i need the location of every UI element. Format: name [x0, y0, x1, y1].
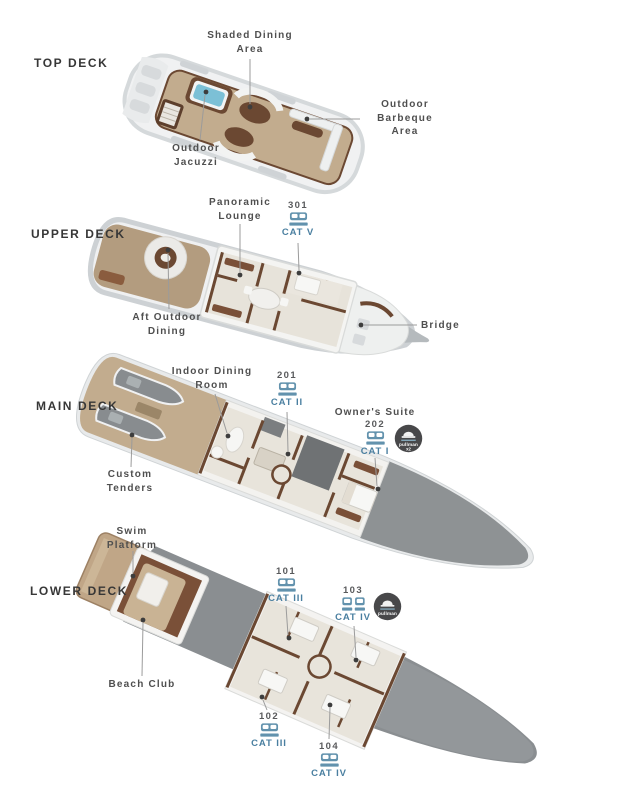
double-bed-icon: [260, 723, 279, 737]
swim-platform-label: Swim Platform: [82, 525, 182, 552]
cabin-201-marker: 201 CAT II: [255, 370, 319, 409]
cabin-number: 201: [255, 370, 319, 381]
double-bed-icon: [277, 578, 296, 592]
beach-club-label: Beach Club: [87, 678, 197, 692]
label-line: Area: [190, 43, 310, 57]
label-line: Swim: [82, 525, 182, 539]
pullman-bed-icon: pullman: [373, 592, 402, 621]
cabin-301-marker: 301 CAT V: [266, 200, 330, 239]
cabin-101-marker: 101 CAT III: [254, 566, 318, 605]
label-line: Aft Outdoor: [112, 311, 222, 325]
label-line: Bridge: [421, 319, 491, 333]
twin-beds-icon: [342, 597, 365, 611]
cabin-102-marker: 102 CAT III: [237, 711, 301, 750]
label-line: Jacuzzi: [146, 156, 246, 170]
label-line: Tenders: [80, 482, 180, 496]
cabin-category: CAT V: [266, 227, 330, 239]
shaded-dining-area-label: Shaded Dining Area: [190, 29, 310, 56]
owners-suite-label: Owner's Suite: [315, 406, 435, 419]
cabin-category: CAT III: [254, 593, 318, 605]
double-bed-icon: [278, 382, 297, 396]
label-line: Outdoor: [146, 142, 246, 156]
cabin-category: CAT III: [237, 738, 301, 750]
pullman-x2-badge: pullman x2: [394, 424, 423, 458]
pullman-badge-label: pullman: [378, 611, 397, 616]
yacht-deck-plan: TOP DECK Shaded Dining Area Outdoor Jacu…: [0, 0, 626, 806]
upper-deck-title: UPPER DECK: [31, 227, 126, 241]
double-bed-icon: [320, 753, 339, 767]
label-line: Area: [363, 125, 447, 139]
indoor-dining-room-label: Indoor Dining Room: [152, 365, 272, 392]
cabin-category: CAT IV: [297, 768, 361, 780]
bow-sheen: [373, 659, 548, 788]
outdoor-jacuzzi-label: Outdoor Jacuzzi: [146, 142, 246, 169]
cabin-number: 301: [266, 200, 330, 211]
lower-deck-title: LOWER DECK: [30, 584, 128, 598]
bridge-label: Bridge: [421, 319, 491, 333]
cabin-number: 102: [237, 711, 301, 722]
cabin-number: 104: [297, 741, 361, 752]
pullman-badge: pullman: [373, 592, 402, 626]
aft-outdoor-dining-label: Aft Outdoor Dining: [112, 311, 222, 338]
double-bed-icon: [366, 431, 385, 445]
main-deck-title: MAIN DECK: [36, 399, 118, 413]
label-line: Platform: [82, 539, 182, 553]
label-line: Room: [152, 379, 272, 393]
pullman-badge-multiplier: x2: [406, 446, 411, 451]
pullman-bed-icon: pullman x2: [394, 424, 423, 453]
cabin-104-marker: 104 CAT IV: [297, 741, 361, 780]
label-line: Custom: [80, 468, 180, 482]
label-line: Shaded Dining: [190, 29, 310, 43]
top-deck-illustration: [113, 44, 375, 204]
label-line: Indoor Dining: [152, 365, 272, 379]
label-line: Dining: [112, 325, 222, 339]
top-deck-title: TOP DECK: [34, 56, 108, 70]
custom-tenders-label: Custom Tenders: [80, 468, 180, 495]
cabin-number: 101: [254, 566, 318, 577]
double-bed-icon: [289, 212, 308, 226]
bow-section: [360, 461, 542, 596]
label-line: Barbeque: [363, 112, 447, 126]
label-line: Beach Club: [87, 678, 197, 692]
cabin-category: CAT II: [255, 397, 319, 409]
outdoor-barbeque-area-label: Outdoor Barbeque Area: [363, 98, 447, 139]
upper-deck-illustration: [81, 212, 440, 380]
label-line: Outdoor: [363, 98, 447, 112]
